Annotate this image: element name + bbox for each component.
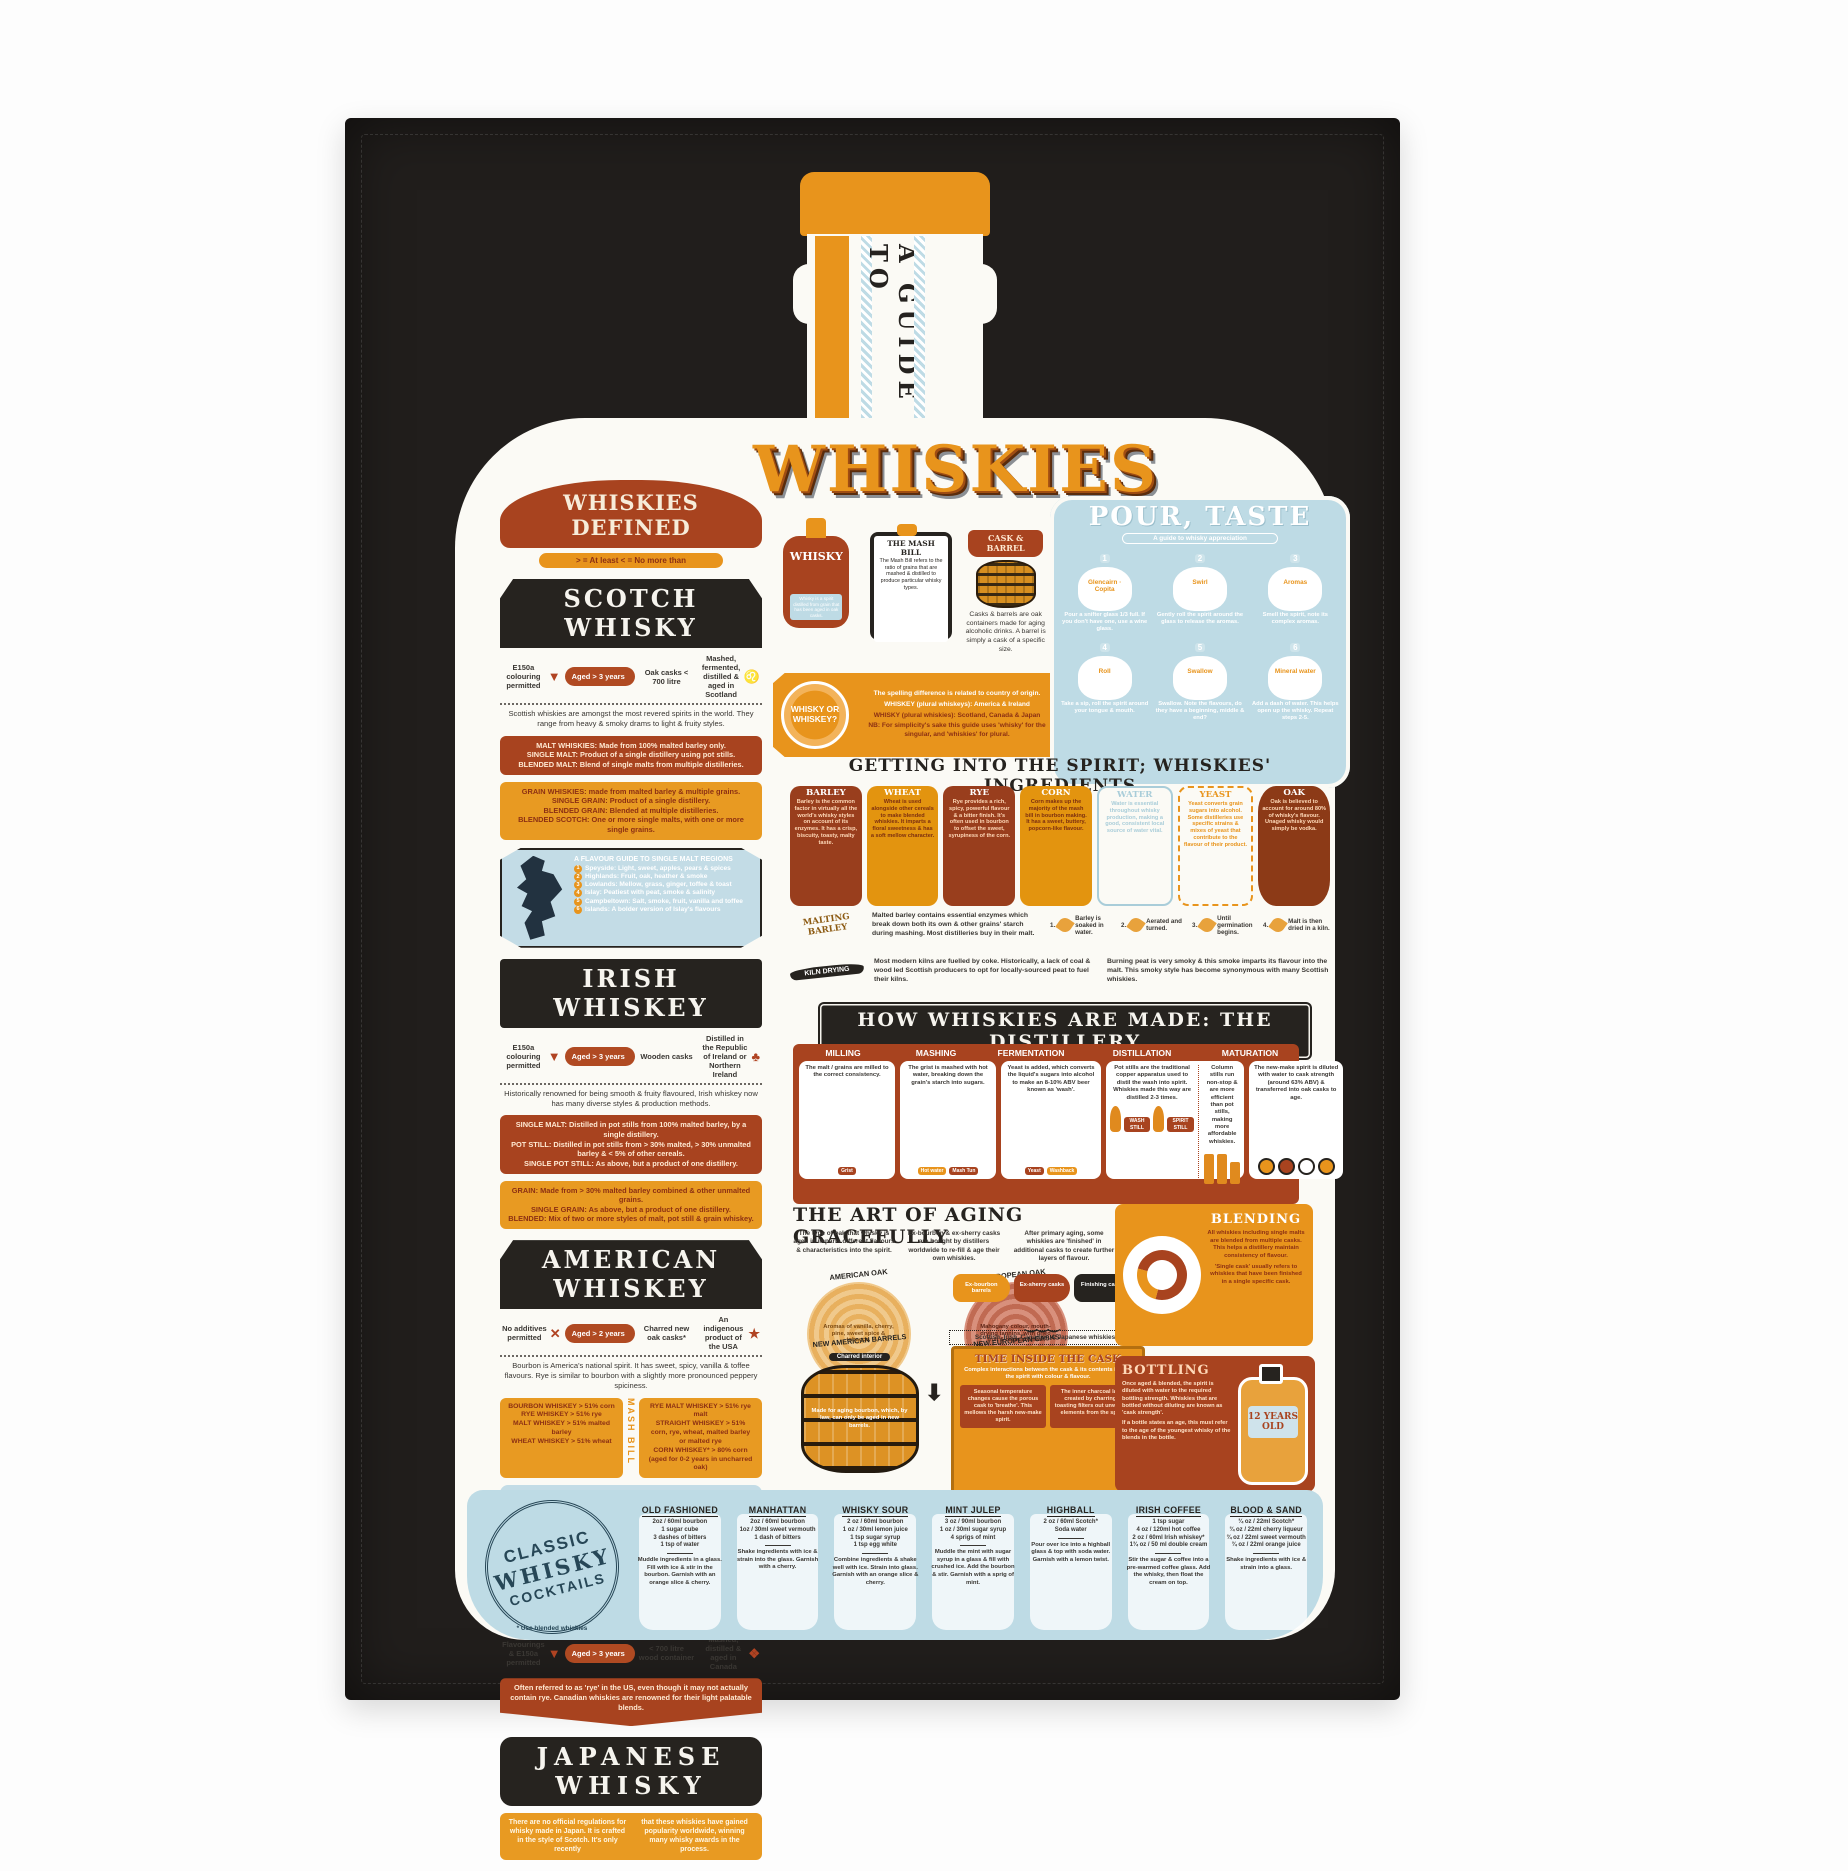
- tasting-step-icon: Aromas: [1268, 567, 1322, 611]
- irish-malt-box: SINGLE MALT: Distilled in pot stills fro…: [500, 1115, 762, 1173]
- column-still-text: Column stills run non-stop & are more ef…: [1204, 1065, 1240, 1146]
- cocktail-ingredients: ¾ oz / 22ml Scotch*¾ oz / 22ml cherry li…: [1222, 1519, 1310, 1550]
- cask-circle-icon: [1278, 1158, 1295, 1175]
- step-number: 5: [1195, 643, 1205, 652]
- fact-cell: Aged > 3 years: [565, 1047, 635, 1066]
- divider: [667, 1553, 693, 1554]
- fact-label: Mashed, fermented, distilled & aged in S…: [701, 654, 740, 699]
- pour-taste-subtitle: A guide to whisky appreciation: [1122, 533, 1278, 544]
- tasting-step-label: Glencairn · Copita: [1078, 579, 1132, 593]
- divider: [765, 1545, 791, 1546]
- barley-grain-icon: [1268, 915, 1287, 934]
- cocktail-ingredient: 4 oz / 120ml hot coffee: [1125, 1527, 1213, 1535]
- aging-col3: After primary aging, some whiskies are '…: [1013, 1230, 1115, 1263]
- cocktail-ingredient: ¾ oz / 22ml cherry liqueur: [1222, 1527, 1310, 1535]
- regions-title: A FLAVOUR GUIDE TO SINGLE MALT REGIONS: [574, 856, 743, 863]
- cask-circle-icon: [1318, 1158, 1335, 1175]
- region-item: 2 Highlands: Fruit, oak, heather & smoke: [574, 873, 743, 881]
- wow-line: WHISKEY (plural whiskeys): America & Ire…: [857, 701, 1057, 710]
- tasting-step-caption: Swallow. Note the flavours, do they have…: [1155, 701, 1244, 722]
- cocktail-column: WHISKY SOUR 2 oz / 60ml bourbon1 oz / 30…: [828, 1498, 922, 1632]
- cocktails-band: CLASSIC WHISKY COCKTAILS * Use blended w…: [467, 1490, 1323, 1640]
- cocktail-name: MANHATTAN: [749, 1505, 807, 1517]
- american-intro: Bourbon is America's national spirit. It…: [500, 1361, 762, 1391]
- cocktail-name: IRISH COFFEE: [1136, 1505, 1201, 1517]
- scotch-intro: Scottish whiskies are amongst the most r…: [500, 709, 762, 729]
- fact-cell: Wooden casks: [639, 1052, 698, 1061]
- japanese-left-text: There are no official regulations for wh…: [508, 1818, 627, 1854]
- cocktail-ingredient: 2 oz / 60ml Scotch*: [1027, 1519, 1115, 1527]
- scotch-header: SCOTCH WHISKY: [500, 579, 762, 648]
- region-item: 1 Speyside: Light, sweet, apples, pears …: [574, 865, 743, 873]
- ingredient-name: CORN: [1020, 788, 1092, 798]
- regions-list: A FLAVOUR GUIDE TO SINGLE MALT REGIONS 1…: [574, 856, 743, 940]
- scotland-map-icon: [510, 856, 568, 940]
- dropper-icon: ▼: [548, 1050, 561, 1063]
- grain-line: GRAIN WHISKIES: made from malted barley …: [508, 787, 754, 797]
- time-cask-title: TIME INSIDE THE CASK: [960, 1353, 1136, 1365]
- classic-whisky-cocktails-stamp: CLASSIC WHISKY COCKTAILS: [471, 1486, 633, 1648]
- malting-step-number: 2.: [1121, 922, 1126, 929]
- maturation-text: The new-make spirit is diluted with wate…: [1253, 1065, 1339, 1102]
- kiln-badge-text: KILN DRYING: [790, 962, 865, 981]
- pour-taste-title: POUR, TASTE: [1060, 502, 1340, 532]
- aging-columns: The type of oak that whisky is aged in i…: [793, 1230, 1115, 1263]
- malting-step: 2. Aerated and turned.: [1121, 915, 1188, 936]
- grist-label: Grist: [838, 1167, 856, 1175]
- fact-label: Oak casks < 700 litre: [639, 668, 695, 686]
- irish-grain-box: GRAIN: Made from > 30% malted barley com…: [500, 1181, 762, 1230]
- cask-circle-icon: [1258, 1158, 1275, 1175]
- whisky-bottle-label: WHISKY: [787, 550, 845, 564]
- fact-cell: E150a colouring permitted ▼: [502, 663, 561, 690]
- region-item: 6 Islands: A bolder version of Islay's f…: [574, 906, 743, 914]
- fact-cell: Charred new oak casks*: [639, 1324, 698, 1342]
- cocktail-ingredient: 1 tsp sugar: [1125, 1519, 1213, 1527]
- washback-label: Washback: [1047, 1167, 1078, 1175]
- malt-line: POT STILL: Distilled in pot stills from …: [508, 1140, 754, 1159]
- cocktail-ingredient: 1¾ oz / 50 ml double cream: [1125, 1542, 1213, 1550]
- irish-header: IRISH WHISKEY: [500, 959, 762, 1028]
- step-number: 1: [1100, 554, 1110, 563]
- step-number: 4: [1100, 643, 1110, 652]
- american-facts: No additives permitted ✕ Aged > 2 years …: [502, 1315, 760, 1351]
- tasting-step: 4 Roll Take a sip, roll the spirit aroun…: [1060, 637, 1149, 722]
- fact-label: Aged > 3 years: [572, 1649, 625, 1658]
- malt-line: SINGLE MALT: Distilled in pot stills fro…: [508, 1120, 754, 1139]
- tasting-step: 2 Swirl Gently roll the spirit around th…: [1155, 548, 1244, 633]
- bottling-box: BOTTLING Once aged & blended, the spirit…: [1115, 1356, 1315, 1492]
- cocktail-column: MINT JULEP 3 oz / 90ml bourbon1 oz / 30m…: [926, 1498, 1020, 1632]
- clipboard-paper: THE MASH BILL The Mash Bill refers to th…: [874, 536, 948, 642]
- grain-line: BLENDED SCOTCH: One or more single malts…: [508, 815, 754, 834]
- mash-line: WHEAT WHISKEY > 51% wheat: [508, 1438, 615, 1447]
- fact-cell: Mashed, distilled & aged in Canada ❖: [701, 1635, 760, 1671]
- divider: [1058, 1538, 1084, 1539]
- malting-step-text: Aerated and turned.: [1146, 918, 1188, 932]
- japanese-box: There are no official regulations for wh…: [500, 1813, 762, 1859]
- canadian-facts: Flavourings & E150a permitted ▼ Aged > 3…: [502, 1635, 760, 1671]
- pour-taste-steps: 1 Glencairn · Copita Pour a snifter glas…: [1060, 548, 1340, 722]
- cocktail-ingredient: 1 dash of bitters: [734, 1535, 822, 1543]
- region-item: 4 Islay: Peatiest with peat, smoke & sal…: [574, 889, 743, 897]
- kiln-drying-row: KILN DRYING Most modern kilns are fuelle…: [790, 958, 1330, 984]
- malting-barley-row: MALTING BARLEY Malted barley contains es…: [790, 912, 1330, 938]
- divider: [1253, 1553, 1279, 1554]
- spirit-still-label: SPIRIT STILL: [1167, 1117, 1194, 1132]
- stage-title-maturation: MATURATION: [1207, 1048, 1293, 1058]
- column-still-icon: [1230, 1162, 1240, 1184]
- fact-label: Aged > 3 years: [572, 672, 625, 681]
- barrel-icon: Made for aging bourbon, which, by law, c…: [801, 1365, 919, 1473]
- cocktail-method: Shake ingredients with ice & strain into…: [1222, 1557, 1310, 1572]
- region-text: Speyside: Light, sweet, apples, pears & …: [585, 865, 731, 873]
- region-number: 6: [574, 906, 582, 914]
- fact-label: Aged > 3 years: [572, 1052, 625, 1061]
- ingredients-row: BARLEY Barley is the common factor in vi…: [790, 786, 1330, 906]
- divider: [862, 1553, 888, 1554]
- cocktail-ingredient: 2 oz / 60ml bourbon: [831, 1519, 919, 1527]
- mash-bill-left: BOURBON WHISKEY > 51% cornRYE WHISKEY > …: [500, 1398, 623, 1479]
- ingredient-text: Wheat is used alongside other cereals to…: [871, 799, 935, 840]
- fact-cell: Aged > 3 years: [565, 1644, 635, 1663]
- ingredient-jar: RYE Rye provides a rich, spicy, powerful…: [943, 786, 1015, 906]
- ingredient-jar: BARLEY Barley is the common factor in vi…: [790, 786, 862, 906]
- ingredient-text: Corn makes up the majority of the mash b…: [1024, 799, 1088, 833]
- cask-pill: Ex-bourbon barrels: [953, 1274, 1010, 1302]
- new-barrel-interior-label: Charred interior: [829, 1353, 890, 1361]
- tasting-step-caption: Add a dash of water. This helps open up …: [1251, 701, 1340, 722]
- kiln-badge: KILN DRYING: [790, 966, 864, 977]
- fact-cell: No additives permitted ✕: [502, 1324, 561, 1342]
- crossed-dropper-icon: ✕: [550, 1327, 561, 1340]
- aging-col2: Ex-bourbon & ex-sherry casks are bought …: [903, 1230, 1005, 1263]
- cocktail-name: WHISKY SOUR: [842, 1505, 908, 1517]
- main-title: WHISKIES: [753, 432, 1083, 507]
- cask-pills-row: Ex-bourbon barrels Ex-sherry casks Finis…: [953, 1274, 1131, 1302]
- section-scotch-whisky: SCOTCH WHISKY E150a colouring permitted …: [500, 579, 762, 948]
- cocktail-method: Combine ingredients & shake well with ic…: [831, 1557, 919, 1587]
- fact-cell: < 700 litre wood container: [639, 1644, 698, 1662]
- bottling-p1: Once aged & blended, the spirit is dilut…: [1122, 1381, 1232, 1417]
- cocktail-ingredients: 2 oz / 60ml Scotch*Soda water: [1027, 1519, 1115, 1535]
- tasting-step-label: Swallow: [1173, 668, 1227, 675]
- fact-label: E150a colouring permitted: [502, 663, 545, 690]
- cask-circle-icon: [1298, 1158, 1315, 1175]
- wash-still-icon: [1110, 1106, 1121, 1132]
- tasting-step: 1 Glencairn · Copita Pour a snifter glas…: [1060, 548, 1149, 633]
- grain-line: BLENDED GRAIN: Blended at multiple disti…: [508, 806, 754, 816]
- divider: [960, 1545, 986, 1546]
- cocktail-columns: OLD FASHIONED 2oz / 60ml bourbon1 sugar …: [633, 1498, 1313, 1632]
- cocktail-name: BLOOD & SAND: [1230, 1505, 1302, 1517]
- mash-line: STRAIGHT WHISKEY > 51% corn, rye, wheat,…: [647, 1420, 754, 1446]
- tasting-step-label: Swirl: [1173, 579, 1227, 586]
- cocktail-ingredient: Soda water: [1027, 1527, 1115, 1535]
- cask-barrel-title: CASK & BARREL: [968, 530, 1043, 557]
- tasting-step: 6 Mineral water Add a dash of water. Thi…: [1251, 637, 1340, 722]
- grain-line: BLENDED: Mix of two or more styles of ma…: [508, 1214, 754, 1224]
- cocktail-ingredient: ¾ oz / 22ml orange juice: [1222, 1542, 1310, 1550]
- kiln-left-text: Most modern kilns are fuelled by coke. H…: [874, 958, 1097, 984]
- cocktail-column: HIGHBALL 2 oz / 60ml Scotch*Soda water P…: [1024, 1498, 1118, 1632]
- yeast-label: Yeast: [1025, 1167, 1044, 1175]
- ingredient-text: Barley is the common factor in virtually…: [794, 799, 858, 847]
- cocktail-ingredients: 1 tsp sugar4 oz / 120ml hot coffee2 oz /…: [1125, 1519, 1213, 1550]
- time-cask-caption: Complex interactions between the cask & …: [960, 1367, 1136, 1381]
- blending-box: BLENDING All whiskies including single m…: [1115, 1204, 1313, 1346]
- irish-intro: Historically renowned for being smooth &…: [500, 1089, 762, 1109]
- usa-star-icon: ★: [748, 1327, 760, 1340]
- hot-water-label: Hot water: [918, 1167, 947, 1175]
- region-number: 1: [574, 865, 582, 873]
- bottling-p2: If a bottle states an age, this must ref…: [1122, 1420, 1232, 1442]
- cocktail-ingredients: 3 oz / 90ml bourbon1 oz / 30ml sugar syr…: [929, 1519, 1017, 1542]
- blending-texts: BLENDING All whiskies including single m…: [1207, 1212, 1305, 1338]
- globe-icon: WHISKY OR WHISKEY?: [781, 681, 849, 749]
- fact-cell: An indigenous product of the USA ★: [701, 1315, 760, 1351]
- fact-label: < 700 litre wood container: [639, 1644, 695, 1662]
- whiskies-defined-banner: WHISKIES DEFINED: [500, 480, 762, 548]
- bottle-neck-stripes: A GUIDE TO: [815, 236, 975, 418]
- malt-line: SINGLE POT STILL: As above, but a produc…: [508, 1159, 754, 1169]
- kiln-right-text: Burning peat is very smoky & this smoke …: [1107, 958, 1330, 984]
- grain-line: GRAIN: Made from > 30% malted barley com…: [508, 1186, 754, 1205]
- cocktail-ingredient: 3 oz / 90ml bourbon: [929, 1519, 1017, 1527]
- distillery-band: MILLING MASHING FERMENTATION DISTILLATIO…: [793, 1044, 1299, 1204]
- age-badge: 12 YEARS OLD: [1248, 1406, 1298, 1438]
- blending-p1: All whiskies including single malts are …: [1207, 1230, 1305, 1261]
- scotch-malt-box: MALT WHISKIES: Made from 100% malted bar…: [500, 736, 762, 775]
- region-item: 3 Lowlands: Mellow, grass, ginger, toffe…: [574, 881, 743, 889]
- region-text: Campbeltown: Salt, smoke, fruit, vanilla…: [585, 898, 743, 906]
- ingredient-text: Oak is believed to account for around 80…: [1262, 799, 1326, 833]
- malting-step-number: 4.: [1263, 922, 1268, 929]
- distillery-cards: The malt / grains are milled to the corr…: [799, 1061, 1293, 1179]
- cocktail-ingredient: 1 oz / 30ml sugar syrup: [929, 1527, 1017, 1535]
- whisky-or-whiskey-box: WHISKY OR WHISKEY? The spelling differen…: [773, 673, 1065, 757]
- spirit-still-icon: [1153, 1106, 1164, 1132]
- american-header: AMERICAN WHISKEY: [500, 1240, 762, 1309]
- distillery-titles: MILLING MASHING FERMENTATION DISTILLATIO…: [799, 1048, 1293, 1058]
- tasting-step-label: Aromas: [1268, 579, 1322, 586]
- fact-label: Distilled in the Republic of Ireland or …: [701, 1034, 748, 1079]
- ingredient-name: WHEAT: [867, 788, 939, 798]
- fact-label: An indigenous product of the USA: [701, 1315, 745, 1351]
- ingredient-jar: WHEAT Wheat is used alongside other cere…: [867, 786, 939, 906]
- wash-still-label: WASH STILL: [1124, 1117, 1150, 1132]
- mash-line: RYE MALT WHISKEY > 51% rye malt: [647, 1403, 754, 1421]
- tasting-step: 5 Swallow Swallow. Note the flavours, do…: [1155, 637, 1244, 722]
- whisky-bottle-card: WHISKY Whisky is a spirit distilled from…: [773, 528, 860, 655]
- malting-barley-text: Malted barley contains essential enzymes…: [872, 912, 1042, 938]
- shamrock-icon: ♣: [751, 1050, 760, 1063]
- ingredient-name: WATER: [1099, 790, 1171, 800]
- cocktail-ingredients: 2oz / 60ml bourbon1 sugar cube3 dashes o…: [636, 1519, 724, 1550]
- ingredient-jar: YEAST Yeast converts grain sugars into a…: [1178, 786, 1254, 906]
- fact-cell: Aged > 3 years: [565, 667, 635, 686]
- column-still-icon: [1204, 1154, 1214, 1184]
- malting-step: 1. Barley is soaked in water.: [1050, 915, 1117, 936]
- cocktail-ingredient: 2oz / 60ml bourbon: [636, 1519, 724, 1527]
- milling-icon: Grist: [803, 1167, 891, 1175]
- ingredient-name: OAK: [1258, 788, 1330, 798]
- cocktail-ingredient: 1 sugar cube: [636, 1527, 724, 1535]
- bottling-title: BOTTLING: [1122, 1363, 1232, 1378]
- malting-step-number: 1.: [1050, 922, 1055, 929]
- region-text: Highlands: Fruit, oak, heather & smoke: [585, 873, 707, 881]
- canadian-note-box: Often referred to as 'rye' in the US, ev…: [500, 1678, 762, 1726]
- mash-bill-card-title: THE MASH BILL: [876, 539, 946, 558]
- region-text: Islands: A bolder version of Islay's fla…: [585, 906, 721, 914]
- step-number: 3: [1290, 554, 1300, 563]
- column-stills-icon: [1204, 1154, 1240, 1184]
- column-still-icon: [1217, 1154, 1227, 1184]
- malting-step-number: 3.: [1192, 922, 1197, 929]
- divider: [500, 703, 762, 705]
- malting-step: 3. Until germination begins.: [1192, 915, 1259, 936]
- fact-cell: Aged > 2 years: [565, 1324, 635, 1343]
- blending-swirl-icon: [1123, 1236, 1201, 1314]
- fact-cell: Mashed, fermented, distilled & aged in S…: [701, 654, 760, 699]
- fermentation-card: Yeast is added, which converts the liqui…: [1001, 1061, 1101, 1179]
- cocktail-ingredient: 2oz / 60ml bourbon: [734, 1519, 822, 1527]
- new-barrel: NEW AMERICAN BARRELS Charred interior Ma…: [788, 1336, 931, 1475]
- neck-orange-stripe: [815, 236, 849, 418]
- cocktail-ingredient: 1 tsp sugar syrup: [831, 1535, 919, 1543]
- section-irish-whiskey: IRISH WHISKEY E150a colouring permitted …: [500, 959, 762, 1229]
- whisky-bottle-caption: Whisky is a spirit distilled from grain …: [790, 594, 842, 620]
- cocktail-method: Muddle the mint with sugar syrup in a gl…: [929, 1549, 1017, 1587]
- grain-line: SINGLE GRAIN: Product of a single distil…: [508, 796, 754, 806]
- fact-label: Aged > 2 years: [572, 1329, 625, 1338]
- time-cask-left: Seasonal temperature changes cause the p…: [960, 1385, 1046, 1428]
- malting-steps: 1. Barley is soaked in water. 2. Aerated…: [1050, 915, 1330, 936]
- tasting-step-caption: Take a sip, roll the spirit around your …: [1060, 701, 1149, 715]
- stage-title-distillation: DISTILLATION: [1082, 1048, 1202, 1058]
- cocktail-ingredient: ¾ oz / 22ml Scotch*: [1222, 1519, 1310, 1527]
- aging-col1: The type of oak that whisky is aged in i…: [793, 1230, 895, 1263]
- cocktail-column: IRISH COFFEE 1 tsp sugar4 oz / 120ml hot…: [1122, 1498, 1216, 1632]
- fact-label: Wooden casks: [640, 1052, 692, 1061]
- malting-step-text: Barley is soaked in water.: [1075, 915, 1117, 936]
- fact-label: Charred new oak casks*: [639, 1324, 695, 1342]
- malt-line: BLENDED MALT: Blend of single malts from…: [508, 760, 754, 770]
- japanese-header: JAPANESE WHISKY: [500, 1737, 762, 1806]
- canadian-note: Often referred to as 'rye' in the US, ev…: [508, 1683, 754, 1712]
- fact-label: No additives permitted: [502, 1324, 547, 1342]
- cocktail-ingredient: 4 sprigs of mint: [929, 1535, 1017, 1543]
- region-number: 2: [574, 873, 582, 881]
- cask-pill: Ex-sherry casks: [1014, 1274, 1071, 1302]
- mash-bill-card: THE MASH BILL The Mash Bill refers to th…: [868, 528, 955, 655]
- divider: [500, 1355, 762, 1357]
- cocktail-column: BLOOD & SAND ¾ oz / 22ml Scotch*¾ oz / 2…: [1219, 1498, 1313, 1632]
- mash-tun-label: Mash Tun: [949, 1167, 978, 1175]
- cocktail-ingredient: 3 dashes of bitters: [636, 1535, 724, 1543]
- cocktail-name: HIGHBALL: [1047, 1505, 1095, 1517]
- regions-items: 1 Speyside: Light, sweet, apples, pears …: [574, 865, 743, 914]
- mash-line: RYE WHISKEY > 51% rye: [508, 1411, 615, 1420]
- region-number: 4: [574, 889, 582, 897]
- section-whiskies-defined: WHISKIES DEFINED > = At least < = No mor…: [500, 480, 762, 568]
- ingredient-jar: OAK Oak is believed to account for aroun…: [1258, 786, 1330, 906]
- cask-stack-icon: [1253, 1158, 1339, 1175]
- grain-line: SINGLE GRAIN: As above, but a product of…: [508, 1205, 754, 1215]
- mash-line: CORN WHISKEY* > 80% corn (aged for 0-2 y…: [647, 1447, 754, 1473]
- maturation-card: The new-make spirit is diluted with wate…: [1249, 1061, 1343, 1179]
- neck-title: A GUIDE TO: [876, 236, 910, 418]
- ingredient-jar: WATER Water is essential throughout whis…: [1097, 786, 1173, 906]
- cocktail-column: OLD FASHIONED 2oz / 60ml bourbon1 sugar …: [633, 1498, 727, 1632]
- lion-icon: ♌: [744, 670, 760, 683]
- stage-title-mashing: MASHING: [892, 1048, 980, 1058]
- stage-title-fermentation: FERMENTATION: [985, 1048, 1077, 1058]
- fact-cell: E150a colouring permitted ▼: [502, 1043, 561, 1070]
- cocktail-ingredient: 1 oz / 30ml lemon juice: [831, 1527, 919, 1535]
- mash-line: BOURBON WHISKEY > 51% corn: [508, 1403, 615, 1412]
- tasting-step-label: Mineral water: [1268, 668, 1322, 675]
- whisky-bottle-icon: WHISKY Whisky is a spirit distilled from…: [783, 536, 849, 628]
- tea-towel: A GUIDE TO WHISKIES DEFINED > = At least…: [345, 118, 1400, 1700]
- milling-text: The malt / grains are milled to the corr…: [803, 1065, 891, 1080]
- tasting-step-label: Roll: [1078, 668, 1132, 675]
- cocktail-column: MANHATTAN 2oz / 60ml bourbon1oz / 30ml s…: [731, 1498, 825, 1632]
- tasting-step-icon: Roll: [1078, 656, 1132, 700]
- cocktail-method: Shake ingredients with ice & strain into…: [734, 1549, 822, 1572]
- globe-badge: WHISKY OR WHISKEY?: [781, 681, 849, 749]
- cocktail-method: Stir the sugar & coffee into a pre-warme…: [1125, 1557, 1213, 1587]
- bottle-cap: [800, 172, 990, 236]
- region-number: 3: [574, 881, 582, 889]
- time-cask-boxes: Seasonal temperature changes cause the p…: [960, 1385, 1136, 1428]
- ingredient-name: RYE: [943, 788, 1015, 798]
- malting-step-text: Until germination begins.: [1217, 915, 1259, 936]
- cocktail-name: OLD FASHIONED: [642, 1505, 718, 1517]
- pot-stills-icon: WASH STILL SPIRIT STILL: [1110, 1106, 1194, 1132]
- mash-bill-card-text: The Mash Bill refers to the ratio of gra…: [876, 558, 946, 592]
- cocktail-ingredient: 1 tsp of water: [636, 1542, 724, 1550]
- new-barrel-text: Made for aging bourbon, which, by law, c…: [812, 1408, 908, 1430]
- fact-cell: Oak casks < 700 litre: [639, 668, 698, 686]
- mash-line: MALT WHISKEY > 51% malted barley: [508, 1420, 615, 1438]
- barley-grain-icon: [1126, 915, 1145, 934]
- ingredient-name: BARLEY: [790, 788, 862, 798]
- ingredient-name: YEAST: [1180, 790, 1252, 800]
- mashing-text: The grist is mashed with hot water, brea…: [904, 1065, 992, 1087]
- region-item: 5 Campbeltown: Salt, smoke, fruit, vanil…: [574, 898, 743, 906]
- divider: [500, 1083, 762, 1085]
- scotch-regions-box: A FLAVOUR GUIDE TO SINGLE MALT REGIONS 1…: [500, 848, 762, 948]
- cocktail-ingredient: 1oz / 30ml sweet vermouth: [734, 1527, 822, 1535]
- cocktail-ingredients: 2 oz / 60ml bourbon1 oz / 30ml lemon jui…: [831, 1519, 919, 1550]
- cask-pill-label: Ex-bourbon barrels: [965, 1282, 998, 1294]
- mashing-card: The grist is mashed with hot water, brea…: [900, 1061, 996, 1179]
- cocktails-stamp-area: CLASSIC WHISKY COCKTAILS * Use blended w…: [477, 1498, 627, 1632]
- ingredient-text: Yeast converts grain sugars into alcohol…: [1184, 801, 1248, 849]
- irish-facts: E150a colouring permitted ▼ Aged > 3 yea…: [502, 1034, 760, 1079]
- barley-grain-icon: [1197, 915, 1216, 934]
- cocktail-ingredients: 2oz / 60ml bourbon1oz / 30ml sweet vermo…: [734, 1519, 822, 1542]
- intro-cards-row: WHISKY Whisky is a spirit distilled from…: [773, 528, 1049, 655]
- scotch-grain-box: GRAIN WHISKIES: made from malted barley …: [500, 782, 762, 840]
- malt-line: MALT WHISKIES: Made from 100% malted bar…: [508, 741, 754, 751]
- tasting-step-icon: Mineral water: [1268, 656, 1322, 700]
- mash-bill-row: BOURBON WHISKEY > 51% cornRYE WHISKEY > …: [500, 1398, 762, 1479]
- tasting-step-icon: Swallow: [1173, 656, 1227, 700]
- mash-bill-right: RYE MALT WHISKEY > 51% rye maltSTRAIGHT …: [639, 1398, 762, 1479]
- region-number: 5: [574, 898, 582, 906]
